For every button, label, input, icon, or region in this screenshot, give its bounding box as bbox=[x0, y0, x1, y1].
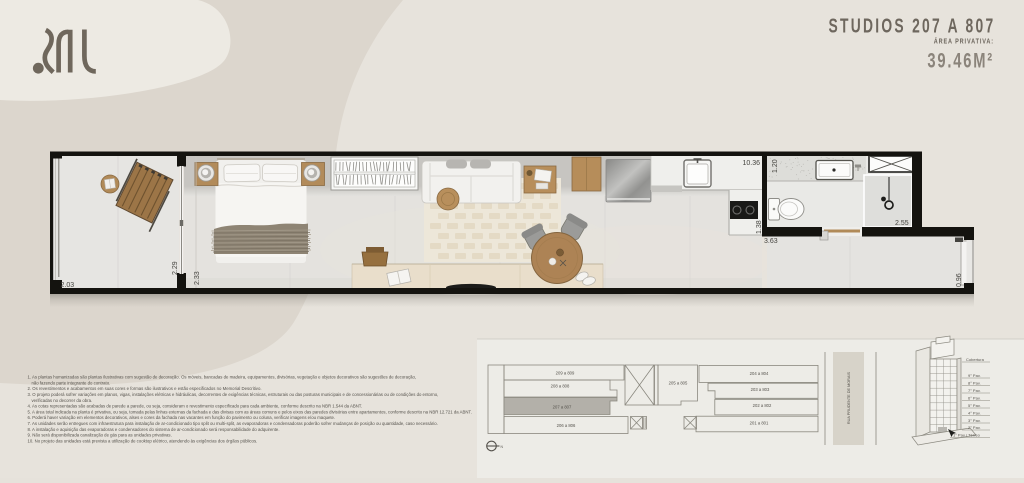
svg-text:RUA PRUDENTE DE MORAIS: RUA PRUDENTE DE MORAIS bbox=[847, 371, 851, 424]
svg-text:9. Não será disponibilizada ca: 9. Não será disponibilizada canalização … bbox=[28, 433, 172, 438]
svg-text:ÁREA PRIVATIVA:: ÁREA PRIVATIVA: bbox=[934, 36, 994, 46]
svg-text:204 a 804: 204 a 804 bbox=[750, 371, 769, 376]
svg-text:0.96: 0.96 bbox=[956, 273, 963, 287]
svg-text:203 a 803: 203 a 803 bbox=[751, 387, 770, 392]
svg-text:209 a 809: 209 a 809 bbox=[556, 371, 575, 376]
svg-text:10.36: 10.36 bbox=[742, 160, 760, 167]
svg-text:4° Pav.: 4° Pav. bbox=[968, 411, 981, 416]
svg-text:10. No projeto das unidades es: 10. No projeto das unidades está previst… bbox=[28, 438, 258, 443]
svg-text:verificadas no decorrer da obr: verificadas no decorrer da obra. bbox=[32, 398, 93, 403]
svg-text:não fazendo parte integrante d: não fazendo parte integrante do contrato… bbox=[32, 380, 111, 385]
svg-text:2.33: 2.33 bbox=[194, 271, 201, 285]
svg-text:206 a 806: 206 a 806 bbox=[557, 423, 576, 428]
svg-text:201 a 801: 201 a 801 bbox=[750, 421, 769, 426]
svg-text:3.63: 3.63 bbox=[764, 238, 778, 245]
svg-text:9° Pav.: 9° Pav. bbox=[968, 373, 981, 378]
svg-text:39.46M²: 39.46M² bbox=[927, 49, 994, 72]
svg-text:5° Pav.: 5° Pav. bbox=[968, 403, 981, 408]
svg-text:2.03: 2.03 bbox=[61, 282, 75, 289]
svg-text:8. A instalação e aquisição da: 8. A instalação e aquisição das evaporad… bbox=[28, 427, 280, 432]
svg-text:4. As cotas representadas são: 4. As cotas representadas são acabadas d… bbox=[28, 404, 363, 409]
svg-text:8° Pav.: 8° Pav. bbox=[968, 381, 981, 386]
svg-text:6° Pav.: 6° Pav. bbox=[968, 396, 981, 401]
svg-text:7. As unidades serão entregues: 7. As unidades serão entregues com infra… bbox=[28, 421, 438, 426]
svg-text:Cobertura: Cobertura bbox=[966, 357, 985, 362]
svg-text:1. As plantas humanizadas são: 1. As plantas humanizadas são plantas il… bbox=[28, 375, 417, 380]
svg-text:3° Pav.: 3° Pav. bbox=[968, 418, 981, 423]
svg-text:6. Poderá haver variação em el: 6. Poderá haver variação em elementos de… bbox=[28, 415, 336, 420]
svg-text:1.20: 1.20 bbox=[772, 159, 779, 173]
svg-text:3. O projeto poderá sofrer var: 3. O projeto poderá sofrer variações em … bbox=[28, 392, 439, 397]
svg-text:1° Pav / Térreo: 1° Pav / Térreo bbox=[953, 433, 981, 438]
svg-text:2. Os revestimentos e acabamen: 2. Os revestimentos e acabamentos em sua… bbox=[28, 386, 262, 391]
svg-text:202 a 802: 202 a 802 bbox=[753, 403, 772, 408]
svg-text:208 a 808: 208 a 808 bbox=[551, 384, 570, 389]
svg-text:5. A área total indicada na pl: 5. A área total indicada na planta é pri… bbox=[28, 409, 472, 414]
svg-text:205 a 805: 205 a 805 bbox=[669, 381, 688, 386]
svg-text:207 a 807: 207 a 807 bbox=[553, 405, 572, 410]
svg-text:2.29: 2.29 bbox=[172, 261, 179, 275]
svg-text:STUDIOS 207 A 807: STUDIOS 207 A 807 bbox=[828, 14, 995, 37]
svg-text:2° Pav.: 2° Pav. bbox=[968, 425, 981, 430]
svg-text:2.55: 2.55 bbox=[895, 220, 909, 227]
svg-text:7° Pav.: 7° Pav. bbox=[968, 388, 981, 393]
svg-text:1.38: 1.38 bbox=[756, 220, 763, 234]
